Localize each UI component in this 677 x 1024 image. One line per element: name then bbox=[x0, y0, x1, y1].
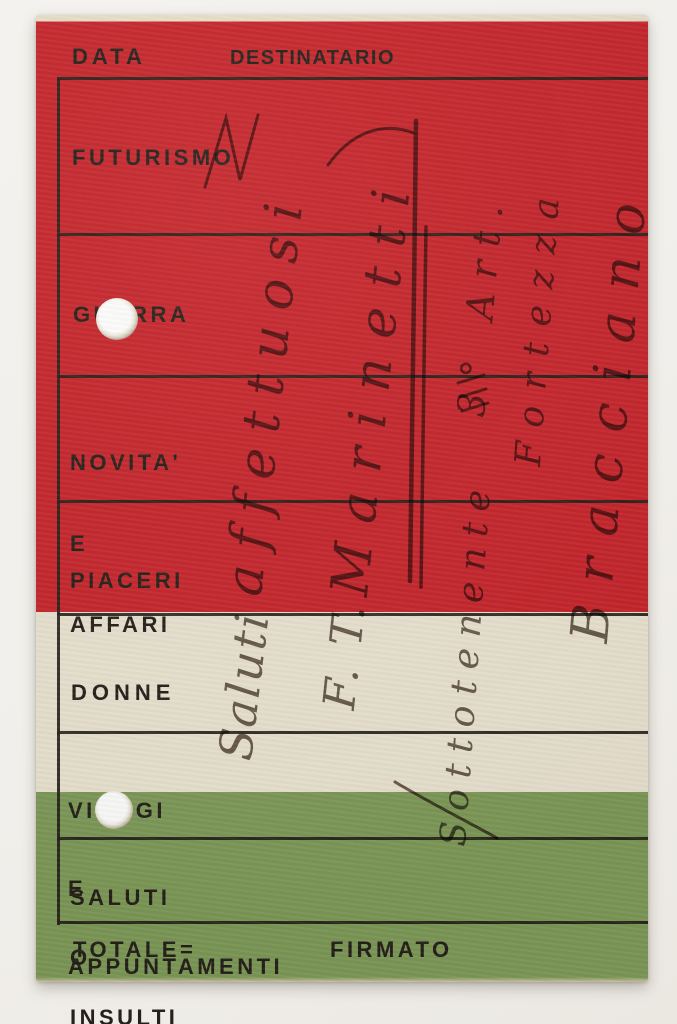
marinetti-t-bar-flourish bbox=[328, 128, 414, 165]
ordinal-triple-tick bbox=[458, 375, 488, 411]
handwriting-flourish-strokes bbox=[36, 15, 648, 982]
futurist-postcard: DATA DESTINATARIO FUTURISMO GUERRA NOVIT… bbox=[36, 15, 648, 982]
signature-underline-stroke-1 bbox=[410, 121, 416, 581]
punch-hole-top bbox=[96, 298, 138, 340]
row-label-line: INSULTI bbox=[70, 1008, 178, 1024]
punch-hole-bottom bbox=[95, 791, 133, 829]
affettuosi-end-flourish bbox=[205, 115, 258, 187]
sottotenente-lead-in-stroke bbox=[395, 782, 497, 838]
signature-underline-stroke-2 bbox=[421, 227, 426, 587]
